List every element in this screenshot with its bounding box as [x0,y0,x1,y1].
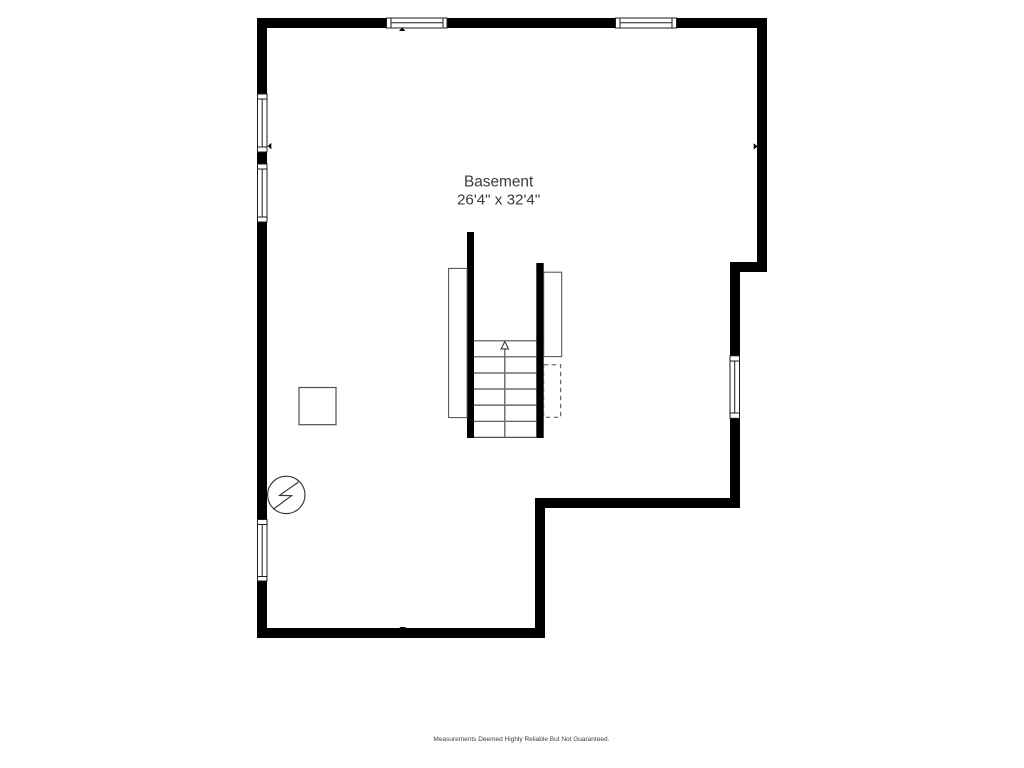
svg-text:Measurements Deemed Highly Rel: Measurements Deemed Highly Reliable But … [433,736,609,743]
svg-text:26'4" x 32'4": 26'4" x 32'4" [457,191,540,208]
svg-text:Basement: Basement [464,174,534,191]
